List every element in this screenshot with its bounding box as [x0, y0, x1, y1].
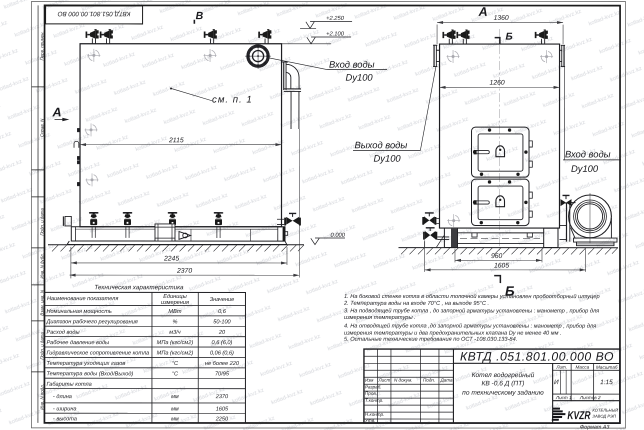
svg-text:Разраб.: Разраб. — [365, 385, 382, 390]
svg-text:Вход воды: Вход воды — [565, 148, 611, 159]
svg-text:см. п. 1: см. п. 1 — [212, 94, 253, 105]
svg-text:Справ. N: Справ. N — [40, 118, 45, 137]
svg-text:МВт: МВт — [168, 309, 181, 315]
svg-text:Рабочее давление воды: Рабочее давление воды — [46, 340, 109, 346]
svg-text:KVZR: KVZR — [567, 410, 591, 423]
svg-text:Выход воды: Выход воды — [355, 139, 408, 150]
svg-text:5. Остальные технические треб: 5. Остальные технические требования по О… — [344, 337, 517, 343]
svg-text:МПа (кгс/см2): МПа (кгс/см2) — [157, 351, 194, 357]
svg-text:Dy100: Dy100 — [374, 153, 402, 164]
svg-text:Инв. N дубл.: Инв. N дубл. — [39, 253, 44, 278]
svg-text:измерения: измерения — [161, 300, 189, 306]
svg-text:КОТЕЛЬНЫЙ: КОТЕЛЬНЫЙ — [592, 408, 618, 413]
svg-text:КВ -0,6 Д (ПТ): КВ -0,6 Д (ПТ) — [481, 380, 524, 387]
svg-text:КВТД .051.801.00.000 ВО: КВТД .051.801.00.000 ВО — [460, 350, 614, 364]
svg-text:Расход воды: Расход воды — [46, 330, 79, 336]
svg-text:Изм: Изм — [365, 378, 374, 383]
svg-text:Подп. и дата: Подп. и дата — [39, 332, 44, 360]
svg-text:- длина: - длина — [53, 394, 72, 400]
svg-text:Т.контр.: Т.контр. — [365, 398, 384, 403]
svg-text:1360: 1360 — [494, 15, 509, 22]
svg-text:КВТД.051.801.00.000 ВО: КВТД.051.801.00.000 ВО — [58, 10, 131, 17]
svg-text:измерения температуры .: измерения температуры . — [344, 315, 416, 321]
svg-text:Техническая характеристика: Техническая характеристика — [94, 284, 184, 291]
svg-text:не более 220: не более 220 — [205, 361, 240, 367]
svg-text:0,6: 0,6 — [218, 309, 227, 315]
svg-text:Dy100: Dy100 — [346, 72, 374, 83]
svg-text:Инв. N подл.: Инв. N подл. — [39, 384, 44, 410]
svg-text:%: % — [172, 319, 177, 325]
svg-text:+2.250: +2.250 — [326, 16, 345, 22]
svg-text:2. Температура воды на входе: 2. Температура воды на входе 70°С , на в… — [343, 301, 489, 307]
svg-text:мм: мм — [171, 416, 179, 422]
svg-text:Листов 2: Листов 2 — [579, 395, 601, 400]
svg-text:И: И — [554, 379, 559, 386]
svg-text:м3/ч: м3/ч — [169, 330, 181, 336]
svg-text:Масса: Масса — [576, 365, 590, 370]
svg-text:Дата: Дата — [439, 378, 453, 383]
svg-text:1605: 1605 — [494, 262, 509, 269]
svg-text:ЗАВОД РЭП: ЗАВОД РЭП — [592, 414, 616, 419]
svg-text:20: 20 — [218, 330, 226, 336]
svg-text:1260: 1260 — [490, 80, 505, 87]
svg-text:°С: °С — [172, 371, 179, 377]
svg-text:Dy100: Dy100 — [571, 163, 599, 174]
svg-text:°С: °С — [172, 361, 179, 367]
svg-text:Котел водогрейный: Котел водогрейный — [472, 371, 535, 379]
svg-text:Наименование показателя: Наименование показателя — [47, 296, 118, 302]
svg-text:Габариты котла: Габариты котла — [46, 382, 91, 388]
svg-text:Температура воды (Вход/Выход): Температура воды (Вход/Выход) — [46, 371, 133, 377]
svg-text:Б: Б — [506, 32, 513, 43]
svg-text:2370: 2370 — [215, 394, 229, 400]
svg-text:Подп.: Подп. — [423, 378, 435, 383]
svg-text:Перв. примен.: Перв. примен. — [40, 31, 45, 60]
svg-text:70/95: 70/95 — [215, 371, 230, 377]
svg-text:0,6 (6,0): 0,6 (6,0) — [212, 340, 233, 346]
svg-text:4. На отводящей трубе котла ,: 4. На отводящей трубе котла ,до запорной… — [344, 323, 596, 330]
svg-text:Температура уходящих газов: Температура уходящих газов — [46, 361, 125, 367]
svg-text:по техническому заданию: по техническому заданию — [462, 389, 544, 397]
svg-text:Лист 1: Лист 1 — [555, 395, 572, 400]
svg-text:2245: 2245 — [163, 255, 179, 262]
svg-text:МПа (кгс/см2): МПа (кгс/см2) — [157, 340, 194, 346]
svg-text:Утв.: Утв. — [365, 418, 375, 423]
svg-text:мм: мм — [171, 406, 179, 412]
svg-text:- ширина: - ширина — [53, 406, 77, 412]
svg-text:1. На боковой стенке котла в: 1. На боковой стенке котла в области топ… — [344, 293, 600, 300]
svg-text:Формат А3: Формат А3 — [580, 425, 610, 430]
svg-text:- высота: - высота — [53, 416, 77, 422]
svg-text:1605: 1605 — [216, 406, 229, 412]
svg-text:Значение: Значение — [210, 297, 235, 303]
svg-text:N докум.: N докум. — [394, 378, 413, 383]
svg-text:3. На подводящей трубе котла: 3. На подводящей трубе котла , до запорн… — [344, 307, 599, 314]
svg-text:В: В — [196, 10, 204, 22]
svg-text:Номинальная мощность: Номинальная мощность — [46, 309, 111, 315]
svg-text:А: А — [52, 105, 62, 119]
svg-text:0.000: 0.000 — [330, 233, 345, 239]
svg-text:Лит.: Лит. — [555, 365, 567, 370]
svg-text:Подп. и дата: Подп. и дата — [39, 208, 44, 236]
svg-text:2115: 2115 — [168, 137, 184, 144]
svg-text:Лист: Лист — [377, 378, 390, 383]
svg-text:2250: 2250 — [215, 416, 229, 422]
svg-text:1:15: 1:15 — [600, 379, 613, 386]
svg-text:Гидравлическое сопротивление к: Гидравлическое сопротивление котла — [46, 351, 149, 357]
svg-text:0,06 (0,6): 0,06 (0,6) — [210, 351, 234, 357]
svg-text:Вход воды: Вход воды — [329, 59, 375, 70]
svg-text:+2.100: +2.100 — [326, 32, 345, 38]
svg-text:Пров.: Пров. — [365, 391, 377, 396]
svg-text:960: 960 — [491, 253, 503, 260]
svg-text:Диапазон рабочего регулировани: Диапазон рабочего регулирования — [45, 319, 137, 325]
svg-text:50-100: 50-100 — [213, 319, 231, 325]
svg-text:2370: 2370 — [176, 268, 192, 275]
svg-text:Масштаб: Масштаб — [596, 365, 618, 370]
svg-text:Взам. инв. N: Взам. инв. N — [39, 289, 44, 315]
svg-text:Н.контр.: Н.контр. — [365, 412, 384, 417]
svg-text:мм: мм — [171, 394, 179, 400]
svg-text:А: А — [478, 5, 488, 19]
